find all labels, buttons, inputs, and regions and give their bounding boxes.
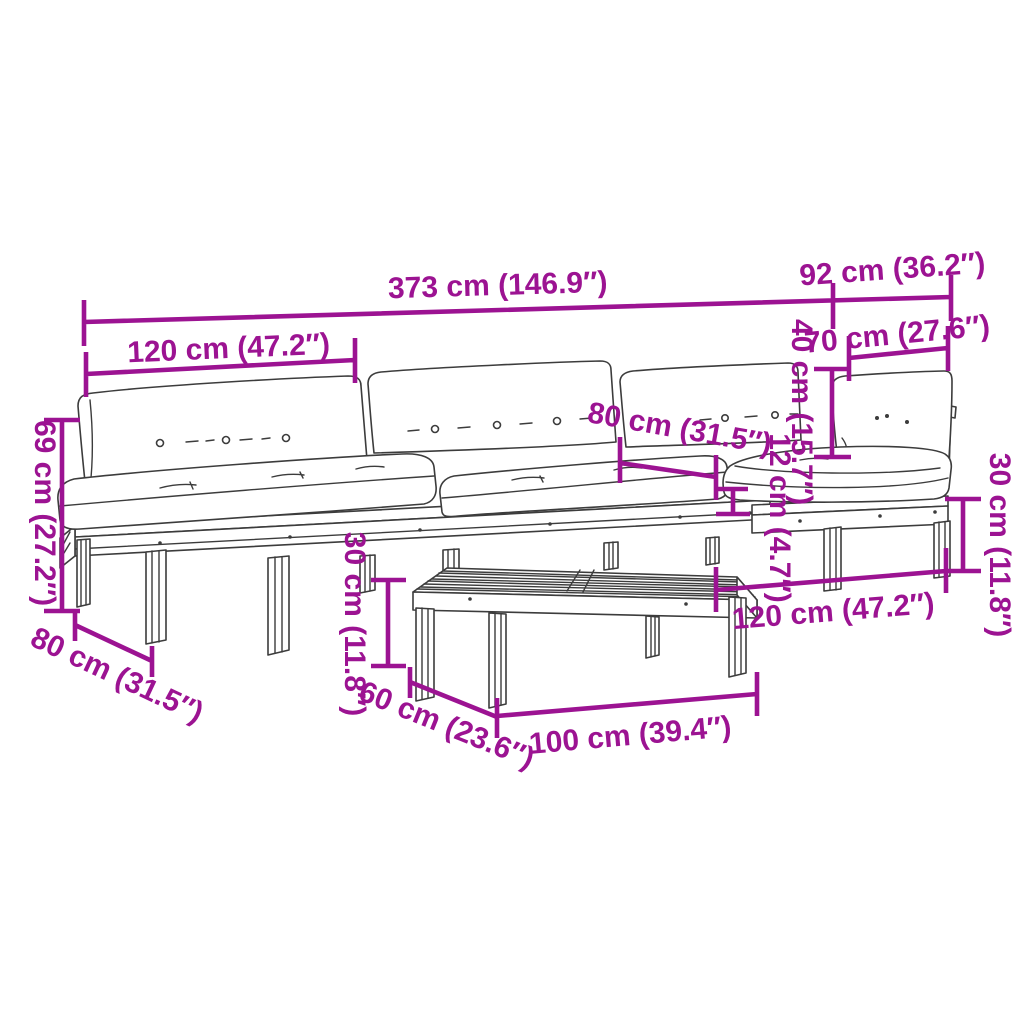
- coffee-table: [413, 568, 757, 708]
- leg: [146, 550, 166, 644]
- product-diagram: 373 cm (146.9″) 92 cm (36.2″) 120 cm (47…: [0, 0, 1024, 1024]
- table-leg: [489, 613, 506, 708]
- dim-label-total-height: 69 cm (27.2″): [28, 420, 61, 606]
- diagram-canvas: 373 cm (146.9″) 92 cm (36.2″) 120 cm (47…: [0, 0, 1024, 1024]
- table-leg: [646, 616, 659, 658]
- dim-label-corner-depth-total: 92 cm (36.2″): [798, 247, 986, 293]
- dim-label-total-length: 373 cm (146.9″): [388, 266, 608, 305]
- leg: [604, 542, 618, 570]
- leg: [77, 539, 90, 607]
- leg: [268, 556, 289, 655]
- dim-label-table-length: 100 cm (39.4″): [528, 710, 733, 761]
- back-cushion-2: [368, 361, 616, 453]
- dim-label-cushion-thickness: 12 cm (4.7″): [763, 433, 796, 602]
- dimension-table-height: [371, 580, 406, 666]
- leg: [706, 537, 719, 565]
- dim-label-table-depth: 60 cm (23.6″): [354, 675, 539, 775]
- dim-label-corner-module-length: 120 cm (47.2″): [731, 587, 936, 636]
- dim-label-module-depth: 80 cm (31.5″): [26, 621, 209, 730]
- dim-label-base-height: 30 cm (11.8″): [983, 453, 1016, 637]
